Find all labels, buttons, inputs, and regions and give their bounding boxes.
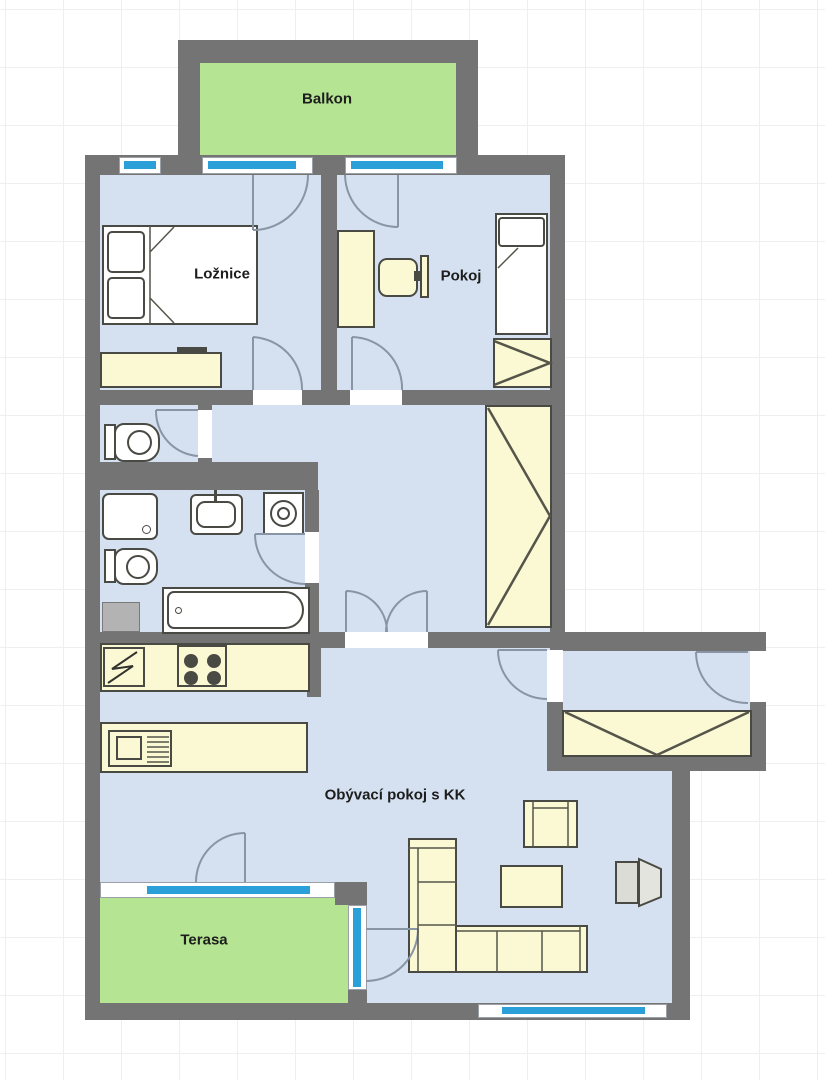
wall-corridor-top (550, 632, 766, 651)
wall-below-bedrooms-c (402, 390, 550, 405)
fridge-icon (103, 647, 145, 687)
balcony-floor (200, 63, 456, 157)
wardrobe-icon (485, 405, 552, 628)
floorplan-canvas: Balkon Ložnice Pokoj Obývací pokoj s KK … (0, 0, 825, 1080)
wall-below-bedrooms-a (100, 390, 253, 405)
wall-wc-bath-band (100, 462, 318, 490)
monitor-icon (420, 255, 429, 298)
dresser-handle-icon (177, 347, 207, 354)
window-living-south-glass (502, 1007, 645, 1014)
washbasin-inner-icon (196, 501, 236, 528)
wall-left (85, 155, 100, 1020)
wall-balcony-top (178, 40, 478, 63)
burner-icon (207, 671, 221, 685)
door-opening-entry-hall (547, 650, 563, 702)
pillow-icon (107, 277, 145, 319)
room-label-balkon: Balkon (302, 91, 352, 108)
room-label-pokoj: Pokoj (441, 268, 482, 285)
wall-entry-bottom (547, 757, 766, 771)
washbasin-tap-icon (214, 490, 217, 503)
armchair-icon (523, 800, 578, 848)
shower-icon (102, 493, 158, 540)
burner-icon (184, 654, 198, 668)
toilet-bowl-inner-icon (127, 430, 152, 455)
office-chair-icon (378, 258, 418, 297)
room-label-obyvaci-pokoj: Obývací pokoj s KK (325, 787, 466, 804)
wall-living-right (672, 757, 690, 1007)
washing-machine-drum-inner-icon (277, 507, 290, 520)
wall-terrace-corner-top (335, 882, 367, 905)
desk-icon (337, 230, 375, 328)
door-opening-wc (198, 410, 212, 458)
door-opening-entrance (750, 651, 766, 702)
pillow-icon (107, 231, 145, 273)
door-opening-pokoj (350, 390, 402, 405)
terrace-floor (100, 898, 350, 1003)
window-terrace-horizontal-glass (147, 886, 310, 894)
burner-icon (184, 671, 198, 685)
burner-icon (207, 654, 221, 668)
window-loznice-small-glass (124, 161, 156, 169)
door-opening-bathroom (305, 532, 319, 583)
shaft-icon (102, 602, 140, 632)
room-label-loznice: Ložnice (194, 266, 250, 283)
window-terrace-vertical-glass (353, 908, 361, 987)
wall-balcony-right (456, 40, 478, 158)
tv-icon (615, 861, 639, 904)
wall-bedroom-divider (321, 175, 337, 405)
wardrobe-icon (493, 338, 552, 388)
wall-hall-bottom-b (428, 632, 550, 648)
wardrobe-icon (562, 710, 752, 757)
window-pokoj-balcony-glass (351, 161, 443, 169)
door-opening-loznice (253, 390, 302, 405)
dresser-icon (100, 352, 222, 388)
sofa-icon (455, 925, 588, 973)
bathtub-drain-icon (175, 607, 182, 614)
wall-right-upper (550, 155, 565, 647)
kitchen-sink-icon (116, 736, 142, 760)
sofa-icon (408, 838, 457, 973)
coffee-table-icon (500, 865, 563, 908)
bathtub-inner-icon (167, 591, 304, 629)
pillow-icon (498, 217, 545, 247)
shower-drain-icon (142, 525, 151, 534)
wall-below-bedrooms-b (302, 390, 350, 405)
door-opening-double-door (345, 632, 428, 648)
toilet-bowl-inner-icon (126, 555, 150, 579)
wall-terrace-corner-bottom (348, 990, 367, 1004)
room-label-terasa: Terasa (180, 932, 227, 949)
window-loznice-balcony-glass (208, 161, 296, 169)
